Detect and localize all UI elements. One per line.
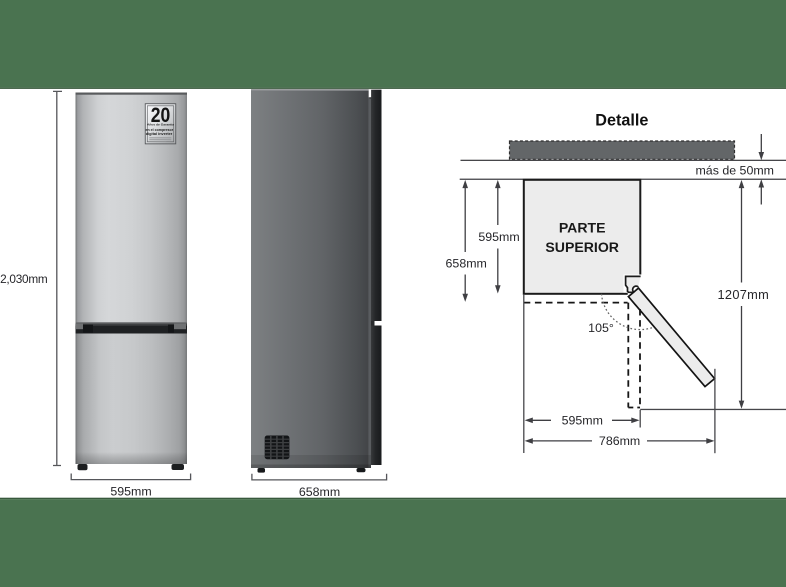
svg-text:658mm: 658mm (299, 485, 340, 499)
svg-text:PARTE: PARTE (559, 220, 606, 236)
svg-text:786mm: 786mm (599, 434, 640, 448)
svg-text:Años de Garantía: Años de Garantía (147, 122, 174, 126)
svg-text:105°: 105° (588, 321, 614, 335)
svg-text:digital inverter: digital inverter (146, 132, 173, 136)
svg-text:Detalle: Detalle (595, 112, 648, 130)
svg-text:595mm: 595mm (110, 485, 151, 499)
svg-text:más de 50mm: más de 50mm (695, 164, 774, 178)
svg-text:SUPERIOR: SUPERIOR (545, 239, 619, 255)
svg-text:595mm: 595mm (478, 230, 519, 244)
svg-text:2,030mm: 2,030mm (0, 272, 48, 286)
svg-text:595mm: 595mm (562, 414, 603, 428)
svg-text:658mm: 658mm (446, 257, 487, 271)
svg-text:1207mm: 1207mm (718, 287, 770, 302)
